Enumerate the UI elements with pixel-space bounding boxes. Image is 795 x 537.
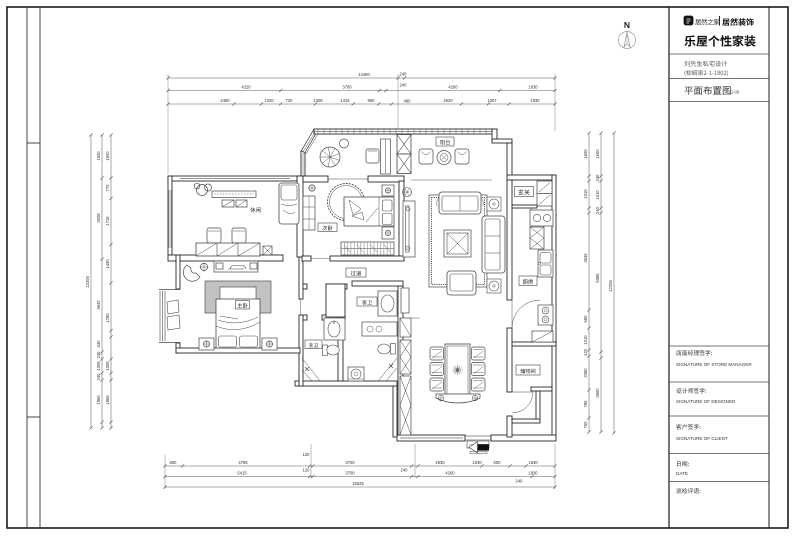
svg-text:240: 240 [401, 468, 409, 473]
svg-text:720: 720 [286, 98, 294, 103]
svg-text:240: 240 [595, 206, 600, 214]
svg-text:120: 120 [303, 468, 311, 473]
svg-text:1780: 1780 [105, 313, 110, 323]
svg-text:SIGNATURE OF DESIGNER: SIGNATURE OF DESIGNER [676, 399, 736, 404]
svg-text:1009: 1009 [96, 361, 101, 371]
svg-text:5395: 5395 [595, 273, 600, 283]
svg-text:SIGNATURE OF CLIENT: SIGNATURE OF CLIENT [676, 436, 728, 441]
svg-text:1600: 1600 [105, 151, 110, 161]
svg-text:430: 430 [96, 340, 101, 348]
svg-text:3700: 3700 [342, 85, 352, 90]
svg-text:1830: 1830 [528, 471, 538, 476]
svg-text:2630: 2630 [435, 460, 445, 465]
svg-text:1010: 1010 [595, 190, 600, 200]
svg-text:1830: 1830 [528, 460, 538, 465]
svg-text:3635: 3635 [583, 253, 588, 263]
svg-text:2620: 2620 [443, 98, 453, 103]
svg-text:SIGNATURE OF STORE MANAGER: SIGNATURE OF STORE MANAGER [676, 362, 752, 367]
svg-text:3700: 3700 [345, 471, 355, 476]
svg-text:600: 600 [494, 460, 502, 465]
svg-text:4755: 4755 [238, 460, 248, 465]
svg-text:1009: 1009 [105, 361, 110, 371]
svg-text:240: 240 [516, 479, 524, 484]
svg-text:1040: 1040 [472, 460, 482, 465]
svg-text:N: N [624, 20, 630, 30]
svg-text:3028: 3028 [96, 213, 101, 223]
svg-text:1007: 1007 [487, 98, 497, 103]
svg-text:2080: 2080 [583, 368, 588, 378]
svg-text:2480: 2480 [220, 98, 230, 103]
svg-text:240: 240 [96, 373, 101, 381]
svg-text:1830: 1830 [530, 98, 540, 103]
svg-text:240: 240 [400, 83, 408, 88]
svg-text:1715: 1715 [105, 216, 110, 226]
svg-text:1600: 1600 [96, 151, 101, 161]
svg-text:14490: 14490 [358, 72, 370, 77]
svg-text:960: 960 [368, 98, 376, 103]
svg-text:4260: 4260 [448, 85, 458, 90]
svg-text:L1-05: L1-05 [729, 90, 740, 95]
svg-text:1415: 1415 [340, 98, 350, 103]
svg-text:1830: 1830 [528, 85, 538, 90]
svg-text:3700: 3700 [345, 460, 355, 465]
svg-text:1010: 1010 [583, 189, 588, 199]
svg-text:3660: 3660 [595, 388, 600, 398]
svg-text:1010: 1010 [583, 335, 588, 345]
svg-text:12205: 12205 [85, 276, 90, 288]
svg-text:750: 750 [583, 421, 588, 429]
svg-text:240: 240 [595, 174, 600, 182]
svg-text:15625: 15625 [352, 481, 364, 486]
svg-text:770: 770 [105, 184, 110, 192]
svg-text:1305: 1305 [313, 98, 323, 103]
svg-text:240: 240 [96, 351, 101, 359]
svg-text:4260: 4260 [445, 471, 455, 476]
svg-text:1430: 1430 [105, 259, 110, 269]
svg-text:480: 480 [404, 99, 412, 104]
svg-text:1965: 1965 [105, 395, 110, 405]
svg-text:5415: 5415 [237, 471, 247, 476]
svg-text:1600: 1600 [583, 149, 588, 159]
svg-text:120: 120 [303, 452, 311, 457]
svg-text:DATE: DATE [676, 471, 688, 476]
svg-text:4220: 4220 [241, 85, 251, 90]
svg-text:1965: 1965 [96, 395, 101, 405]
svg-text:680: 680 [583, 315, 588, 323]
svg-text:12205: 12205 [608, 280, 613, 292]
svg-text:780: 780 [583, 400, 588, 408]
svg-text:3642: 3642 [96, 300, 101, 310]
svg-text:1600: 1600 [595, 149, 600, 159]
svg-text:240: 240 [400, 72, 408, 77]
svg-text:120: 120 [583, 348, 588, 356]
svg-text:660: 660 [170, 460, 178, 465]
svg-text:1020: 1020 [264, 98, 274, 103]
